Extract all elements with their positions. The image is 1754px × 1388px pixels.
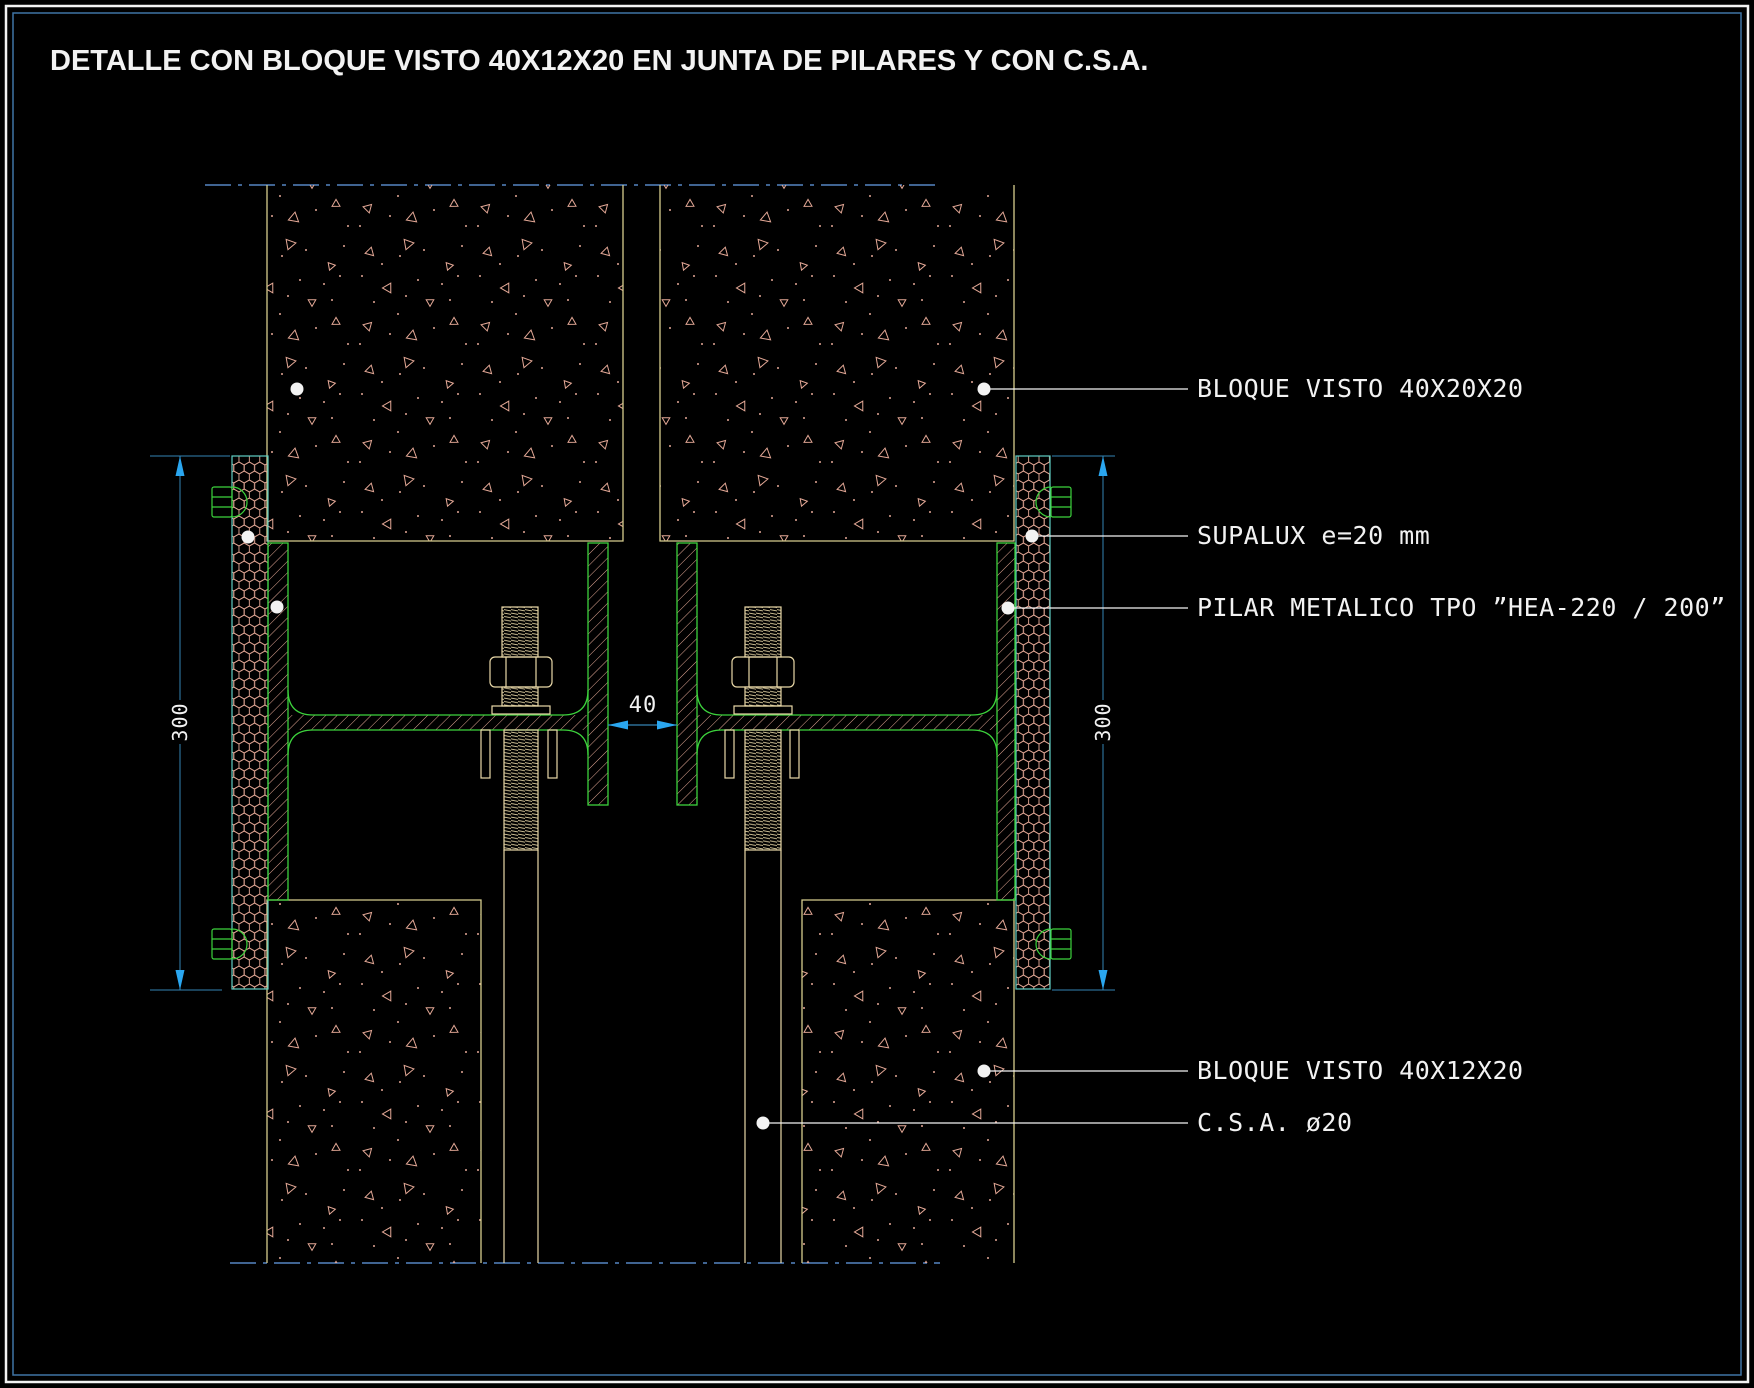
leader-dot-block-left	[291, 383, 304, 396]
label-bloque-visto-40x12x20: BLOQUE VISTO 40X12X20	[1197, 1056, 1524, 1085]
left-rod-side-plate	[548, 730, 557, 778]
left-anchor-assembly	[481, 607, 557, 1263]
label-pilar-metalico: PILAR METALICO TPO ”HEA-220 / 200”	[1197, 593, 1726, 622]
joint-gap-dim-text: 40	[629, 693, 658, 718]
cad-drawing: DETALLE CON BLOQUE VISTO 40X12X20 EN JUN…	[0, 0, 1754, 1388]
right-column-inner-flange	[677, 543, 697, 805]
dim-arrow-left	[608, 721, 628, 730]
dim-arrow-up	[1099, 456, 1108, 476]
upper-left-block	[267, 185, 623, 541]
label-supalux: SUPALUX e=20 mm	[1197, 521, 1430, 550]
left-rod-washer	[492, 706, 550, 714]
right-rod-threaded-top	[745, 607, 781, 657]
page-title: DETALLE CON BLOQUE VISTO 40X12X20 EN JUN…	[50, 45, 1148, 77]
right-rod-washer	[734, 706, 792, 714]
dim-arrow-up	[176, 456, 185, 476]
right-rod-side-plate	[725, 730, 734, 778]
left-column-web-bottom	[288, 730, 588, 755]
left-rod-side-plate	[481, 730, 490, 778]
left-steel-column	[268, 543, 608, 900]
label-bloque-visto-40x20x20: BLOQUE VISTO 40X20X20	[1197, 374, 1524, 403]
right-height-dim-text: 300	[1091, 702, 1115, 741]
right-column-web-hatch	[697, 715, 997, 730]
left-height-dim-text: 300	[168, 702, 192, 741]
right-rod-nut	[732, 657, 794, 687]
left-rod-threaded-top	[502, 607, 538, 657]
leader-dot-pilar-left	[271, 601, 284, 614]
right-column-outer-flange	[997, 543, 1015, 900]
dim-arrow-down	[176, 970, 185, 990]
left-rod-nut	[490, 657, 552, 687]
label-csa: C.S.A. ø20	[1197, 1108, 1353, 1137]
leader-dot-supalux-left	[242, 531, 255, 544]
right-column-web-bottom	[697, 730, 997, 755]
left-column-outer-flange	[268, 543, 288, 900]
dim-arrow-down	[1099, 970, 1108, 990]
cad-viewport: DETALLE CON BLOQUE VISTO 40X12X20 EN JUN…	[0, 0, 1754, 1388]
upper-right-block	[660, 185, 1014, 541]
joint-gap-dimension: 40	[608, 693, 677, 730]
left-height-dimension: 300	[150, 456, 230, 990]
lower-left-block	[267, 900, 481, 1263]
dim-arrow-right	[657, 721, 677, 730]
lower-right-block	[802, 900, 1014, 1263]
right-steel-column	[677, 543, 1015, 900]
right-anchor-assembly	[725, 607, 799, 1263]
right-column-web-top	[697, 690, 997, 715]
left-column-web-hatch	[288, 715, 588, 730]
left-column-inner-flange	[588, 543, 608, 805]
left-column-web-top	[288, 690, 588, 715]
right-rod-side-plate	[790, 730, 799, 778]
